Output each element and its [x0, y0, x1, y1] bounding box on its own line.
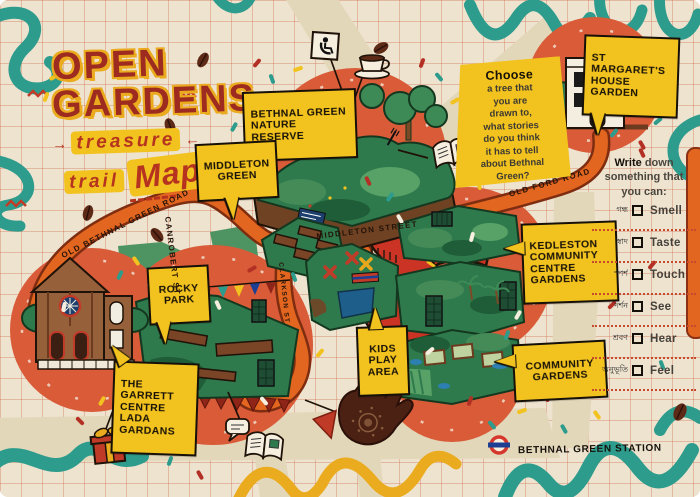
label-kids-play-area: KIDS PLAY AREA: [356, 325, 410, 397]
sense-row-see: দর্শন See: [592, 300, 696, 327]
sense-row-smell: গন্ধ Smell: [592, 204, 696, 231]
checkbox-taste[interactable]: [632, 237, 643, 248]
arrow-right-glyph: →: [52, 136, 68, 154]
sense-row-feel: অনুভূতি Feel: [592, 364, 696, 391]
title-gardens: GARDENS: [51, 81, 242, 124]
sense-row-taste: স্বাদ Taste: [592, 236, 696, 263]
choose-text: a tree that you are drawn to, what stori…: [452, 81, 571, 185]
kids-play-island: [306, 244, 398, 330]
checkbox-feel[interactable]: [632, 365, 643, 376]
senses-checklist: গন্ধ Smell স্বাদ Taste স্পর্শ Touch দর্শ…: [592, 204, 696, 396]
checkbox-touch[interactable]: [632, 269, 643, 280]
underground-roundel-icon: [488, 437, 510, 453]
label-garrett-centre: THE GARRETT CENTRE LADA GARDANS: [110, 361, 199, 457]
checkbox-hear[interactable]: [632, 333, 643, 344]
write-prompt: Write down something that you can:: [596, 156, 692, 199]
treasure-trail-map: OPEN GARDENS → treasure ← trail Map BETH…: [0, 0, 700, 497]
label-middleton-green: MIDDLETON GREEN: [195, 140, 280, 202]
label-st-margarets-house-garden: ST MARGARET'S HOUSE GARDEN: [582, 34, 681, 119]
choose-tree-prompt: Choose a tree that you are drawn to, wha…: [451, 56, 571, 188]
wheelchair-icon: [311, 32, 339, 60]
write-bold: Write: [614, 157, 641, 169]
sense-row-hear: শ্রবণ Hear: [592, 332, 696, 359]
title-treasure: treasure: [71, 128, 181, 155]
sense-row-touch: স্পর্শ Touch: [592, 268, 696, 295]
checkbox-smell[interactable]: [632, 205, 643, 216]
checkbox-see[interactable]: [632, 301, 643, 312]
title-trail: trail: [64, 169, 125, 194]
